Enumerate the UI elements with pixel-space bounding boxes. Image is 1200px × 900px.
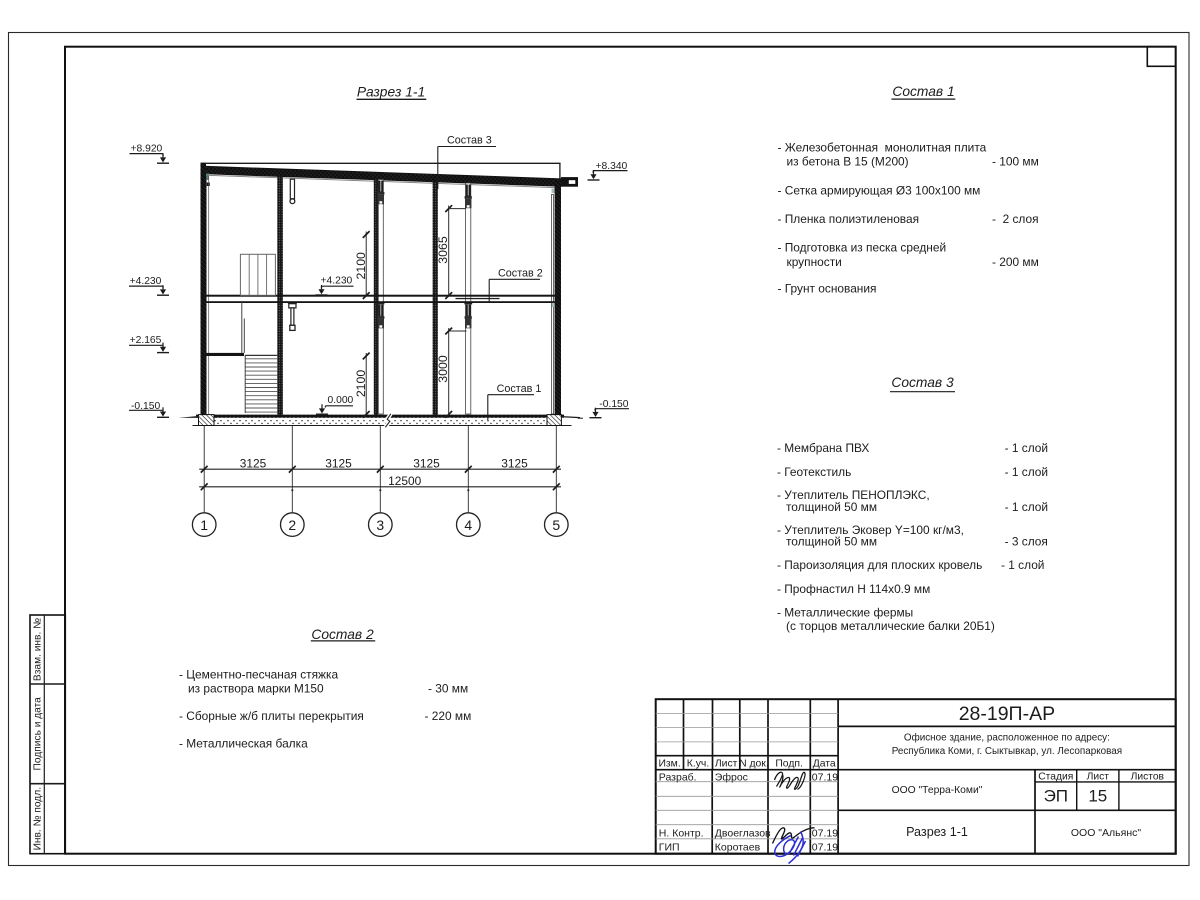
svg-text:Состав 2: Состав 2 [498, 268, 543, 280]
svg-text:07.19: 07.19 [812, 772, 838, 784]
svg-text:07.19: 07.19 [812, 827, 838, 839]
svg-text:Состав 2: Состав 2 [311, 627, 374, 642]
svg-text:- Сетка армирующая Ø3 100х100: - Сетка армирующая Ø3 100х100 мм [778, 184, 981, 198]
svg-text:(с торцов металлические балки: (с торцов металлические балки 20Б1) [786, 619, 995, 633]
svg-text:- 1 слой: - 1 слой [1005, 500, 1048, 514]
svg-text:Двоеглазов: Двоеглазов [715, 827, 771, 839]
svg-text:3125: 3125 [240, 456, 267, 470]
svg-text:толщиной 50 мм: толщиной 50 мм [786, 535, 877, 549]
svg-text:Состав 3: Состав 3 [891, 375, 954, 390]
svg-text:крупности: крупности [787, 255, 842, 269]
svg-text:Подпись и дата: Подпись и дата [33, 697, 44, 771]
svg-text:толщиной 50 мм: толщиной 50 мм [786, 500, 877, 514]
svg-text:- Металлическая балка: - Металлическая балка [179, 737, 308, 751]
svg-text:2100: 2100 [354, 370, 368, 398]
svg-text:- 30 мм: - 30 мм [428, 682, 468, 696]
svg-text:28-19П-АР: 28-19П-АР [959, 703, 1055, 725]
svg-text:1: 1 [200, 517, 208, 533]
svg-text:ЭП: ЭП [1044, 787, 1068, 806]
svg-text:3125: 3125 [413, 456, 440, 470]
svg-text:+4.230: +4.230 [321, 276, 353, 287]
svg-text:Коротаев: Коротаев [715, 841, 761, 853]
svg-text:2: 2 [288, 517, 296, 533]
svg-text:4: 4 [464, 517, 472, 533]
svg-text:2100: 2100 [354, 252, 368, 280]
svg-text:Лист: Лист [715, 758, 738, 769]
svg-text:Подп.: Подп. [775, 758, 803, 769]
svg-text:Изм.: Изм. [658, 758, 680, 769]
svg-text:Листов: Листов [1131, 772, 1165, 783]
svg-text:Состав 3: Состав 3 [447, 135, 492, 147]
svg-text:- Грунт основания: - Грунт основания [778, 282, 877, 296]
svg-text:12500: 12500 [388, 474, 421, 488]
svg-text:0.000: 0.000 [328, 395, 354, 406]
svg-text:Разраб.: Разраб. [659, 772, 697, 784]
svg-text:- Сборные ж/б плиты перекрытия: - Сборные ж/б плиты перекрытия [179, 709, 364, 723]
svg-text:- Цементно-песчаная стяжка: - Цементно-песчаная стяжка [179, 668, 338, 682]
svg-text:- 100 мм: - 100 мм [992, 155, 1039, 169]
svg-text:07.19: 07.19 [812, 841, 838, 853]
svg-text:Дата: Дата [813, 758, 836, 769]
svg-text:15: 15 [1088, 787, 1107, 806]
svg-text:+8.920: +8.920 [131, 143, 163, 154]
svg-text:- Пароизоляция для плоских кро: - Пароизоляция для плоских кровель [777, 558, 982, 572]
svg-text:ООО "Альянс": ООО "Альянс" [1071, 827, 1141, 839]
svg-text:Лист: Лист [1087, 772, 1110, 783]
svg-text:3065: 3065 [436, 236, 450, 264]
svg-text:- 3 слоя: - 3 слоя [1005, 535, 1048, 549]
svg-text:Состав 1: Состав 1 [497, 383, 542, 395]
svg-text:Инв. № подл.: Инв. № подл. [33, 787, 44, 850]
svg-text:3125: 3125 [501, 456, 528, 470]
svg-text:- 200 мм: - 200 мм [992, 255, 1039, 269]
svg-text:- Профнастил Н 114х0.9 мм: - Профнастил Н 114х0.9 мм [777, 582, 930, 596]
svg-text:3125: 3125 [325, 456, 352, 470]
svg-text:- Подготовка из песка средней: - Подготовка из песка средней [778, 241, 947, 255]
svg-text:- 1 слой: - 1 слой [1005, 441, 1048, 455]
svg-text:ГИП: ГИП [659, 841, 680, 853]
svg-text:3000: 3000 [436, 355, 450, 383]
svg-text:- 2 слоя: - 2 слоя [992, 212, 1039, 226]
svg-text:- 1 слой: - 1 слой [1001, 558, 1044, 572]
svg-text:ООО "Терра-Коми": ООО "Терра-Коми" [892, 785, 983, 796]
svg-text:- Мембрана ПВХ: - Мембрана ПВХ [777, 441, 869, 455]
svg-text:Разрез 1-1: Разрез 1-1 [357, 85, 425, 100]
svg-text:Стадия: Стадия [1038, 772, 1073, 783]
svg-text:Н. Контр.: Н. Контр. [659, 827, 704, 839]
svg-text:из бетона В 15 (М200): из бетона В 15 (М200) [787, 155, 909, 169]
svg-text:Взам. инв. №: Взам. инв. № [33, 618, 44, 681]
svg-text:из раствора марки М150: из раствора марки М150 [188, 682, 324, 696]
svg-text:- Геотекстиль: - Геотекстиль [777, 465, 851, 479]
svg-text:+2.165: +2.165 [130, 335, 162, 346]
svg-text:- Пленка полиэтиленовая: - Пленка полиэтиленовая [778, 212, 920, 226]
svg-text:N док.: N док. [739, 758, 769, 769]
svg-text:- 220 мм: - 220 мм [425, 709, 472, 723]
svg-text:- Металлические фермы: - Металлические фермы [777, 606, 913, 620]
svg-text:Эфрос: Эфрос [715, 772, 748, 784]
svg-text:К.уч.: К.уч. [687, 758, 709, 769]
svg-text:Республика Коми, г. Сыктывкар,: Республика Коми, г. Сыктывкар, ул. Лесоп… [892, 746, 1122, 757]
svg-text:- Железобетонная монолитная п: - Железобетонная монолитная плита [778, 141, 987, 155]
svg-text:Разрез 1-1: Разрез 1-1 [906, 825, 968, 839]
svg-text:Состав 1: Состав 1 [892, 84, 954, 99]
svg-text:- 1 слой: - 1 слой [1005, 465, 1048, 479]
svg-text:5: 5 [552, 517, 560, 533]
svg-text:Офисное здание, расположенное: Офисное здание, расположенное по адресу: [904, 733, 1110, 744]
svg-text:3: 3 [376, 517, 384, 533]
